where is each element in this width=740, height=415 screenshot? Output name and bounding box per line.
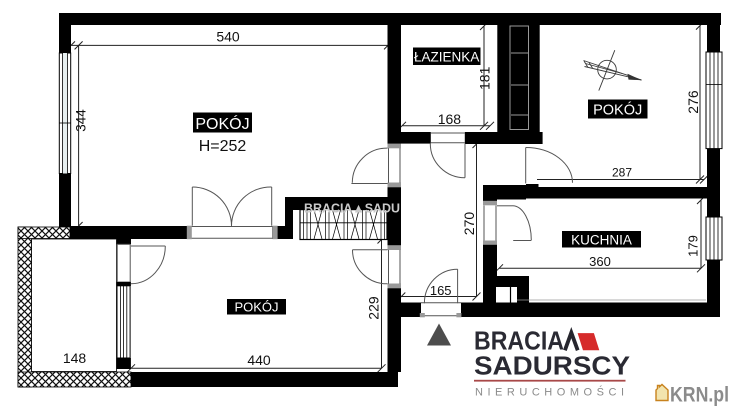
svg-text:270: 270 — [461, 212, 477, 236]
svg-text:181: 181 — [477, 66, 493, 90]
svg-text:KUCHNIA: KUCHNIA — [571, 232, 632, 247]
svg-text:POKÓJ: POKÓJ — [234, 300, 278, 315]
svg-text:SADURSCY: SADURSCY — [474, 353, 630, 381]
svg-text:KRN.pl: KRN.pl — [670, 384, 729, 407]
svg-text:POKÓJ: POKÓJ — [593, 102, 642, 119]
svg-text:287: 287 — [612, 166, 632, 180]
svg-text:276: 276 — [685, 90, 701, 114]
svg-text:165: 165 — [430, 283, 452, 298]
svg-text:BRACIA: BRACIA — [474, 328, 564, 356]
svg-text:H=252: H=252 — [199, 138, 247, 155]
svg-text:NIERUCHOMOŚCI: NIERUCHOMOŚCI — [475, 386, 624, 399]
svg-text:POKÓJ: POKÓJ — [195, 114, 249, 133]
svg-text:148: 148 — [63, 350, 87, 366]
svg-text:ŁAZIENKA: ŁAZIENKA — [414, 50, 479, 65]
svg-text:440: 440 — [247, 352, 271, 368]
svg-text:BRACIA▲SADU: BRACIA▲SADU — [304, 201, 400, 216]
svg-text:179: 179 — [686, 235, 701, 257]
svg-text:540: 540 — [216, 29, 240, 45]
svg-text:360: 360 — [589, 254, 611, 269]
svg-text:344: 344 — [74, 109, 89, 132]
svg-text:168: 168 — [438, 111, 462, 127]
svg-text:229: 229 — [366, 296, 382, 320]
